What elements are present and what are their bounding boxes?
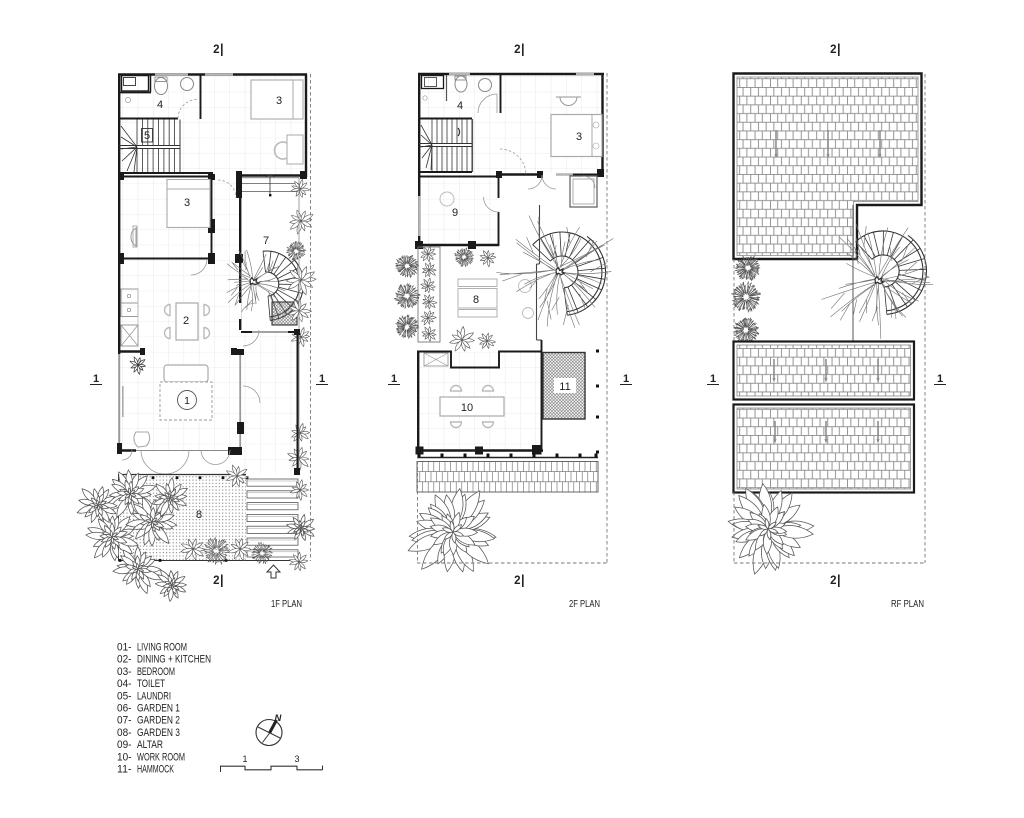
svg-text:8: 8: [473, 294, 479, 306]
svg-text:8: 8: [196, 509, 202, 521]
svg-text:GARDEN 1: GARDEN 1: [137, 703, 180, 715]
svg-text:3: 3: [184, 197, 190, 209]
svg-text:08-: 08-: [117, 727, 132, 739]
svg-text:1: 1: [242, 754, 247, 764]
svg-text:GARDEN 3: GARDEN 3: [137, 727, 180, 739]
svg-text:06-: 06-: [117, 703, 132, 715]
svg-text:2: 2: [213, 44, 219, 56]
svg-text:LIVING ROOM: LIVING ROOM: [137, 642, 187, 654]
svg-text:2: 2: [830, 44, 836, 56]
svg-text:BEDROOM: BEDROOM: [137, 666, 175, 678]
svg-text:LAUNDRI: LAUNDRI: [137, 690, 171, 702]
svg-text:5: 5: [144, 130, 150, 142]
svg-text:TOILET: TOILET: [137, 678, 165, 690]
svg-text:7: 7: [263, 235, 269, 247]
svg-text:3: 3: [294, 754, 299, 764]
svg-text:2F PLAN: 2F PLAN: [569, 598, 600, 610]
svg-text:1: 1: [93, 373, 99, 385]
svg-text:RF PLAN: RF PLAN: [891, 598, 924, 610]
svg-text:05-: 05-: [117, 690, 132, 702]
svg-text:11-: 11-: [117, 764, 132, 776]
svg-text:1: 1: [710, 373, 716, 385]
svg-text:1: 1: [391, 373, 397, 385]
svg-text:2: 2: [514, 575, 520, 587]
svg-text:07-: 07-: [117, 715, 132, 727]
svg-text:ALTAR: ALTAR: [137, 739, 163, 751]
svg-text:1: 1: [937, 373, 943, 385]
svg-text:WORK ROOM: WORK ROOM: [137, 751, 185, 763]
svg-text:9: 9: [452, 207, 458, 219]
svg-text:HAMMOCK: HAMMOCK: [137, 764, 174, 776]
svg-text:03-: 03-: [117, 666, 132, 678]
svg-text:11: 11: [559, 381, 570, 393]
svg-text:4: 4: [157, 99, 163, 111]
svg-text:10: 10: [461, 402, 473, 414]
svg-text:4: 4: [457, 100, 463, 112]
svg-text:3: 3: [276, 95, 282, 107]
svg-text:02-: 02-: [117, 654, 132, 666]
svg-text:1: 1: [319, 373, 325, 385]
svg-text:2: 2: [183, 315, 189, 327]
svg-text:2: 2: [514, 44, 520, 56]
svg-text:04-: 04-: [117, 678, 132, 690]
svg-text:09-: 09-: [117, 739, 132, 751]
svg-text:1F PLAN: 1F PLAN: [271, 598, 302, 610]
svg-text:1: 1: [184, 395, 190, 407]
svg-text:3: 3: [576, 131, 582, 143]
svg-text:2: 2: [830, 575, 836, 587]
svg-text:01-: 01-: [117, 642, 132, 654]
svg-text:GARDEN 2: GARDEN 2: [137, 715, 180, 727]
svg-text:10-: 10-: [117, 751, 132, 763]
svg-text:1: 1: [623, 373, 629, 385]
svg-text:2: 2: [213, 575, 219, 587]
svg-text:N: N: [275, 713, 283, 724]
svg-text:DINING + KITCHEN: DINING + KITCHEN: [137, 654, 211, 666]
